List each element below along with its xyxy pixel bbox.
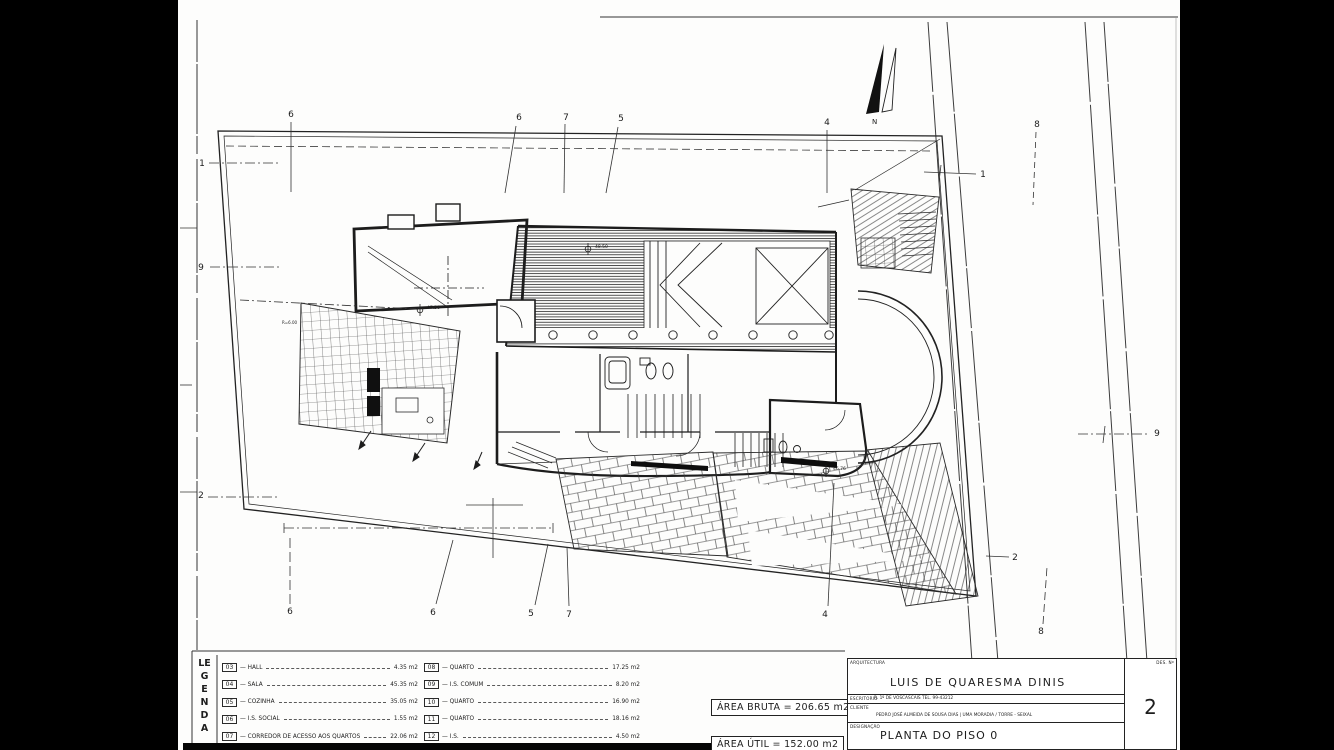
legend-leader (478, 701, 608, 703)
legend-column-right: 08 QUARTO 17.25 m2 09 I.S. COMUM 8.20 m2… (424, 661, 640, 743)
grid-marker-top-5: 4 (824, 118, 830, 128)
legend-code: 03 (222, 663, 237, 672)
legend-area: 45.35 m2 (390, 682, 418, 688)
partitions (497, 354, 770, 432)
grid-marker-top-6: 8 (1034, 120, 1040, 130)
legend-leader (487, 684, 611, 686)
legend-leader (463, 736, 612, 738)
legend-row: 07 CORREDOR DE ACESSO AOS QUARTOS 22.06 … (222, 730, 418, 743)
grid-marker-bottom-2: 6 (430, 608, 436, 618)
legend-code: 05 (222, 698, 237, 707)
legend-row: 06 I.S. SOCIAL 1.55 m2 (222, 713, 418, 726)
legend-row: 05 COZINHA 35.05 m2 (222, 696, 418, 709)
legend-leader (267, 684, 386, 686)
grid-marker-bottom-1: 6 (287, 607, 293, 617)
level-b: 48.50 (595, 244, 608, 250)
grid-marker-left-3: 2 (198, 491, 204, 501)
legend-row: 04 SALA 45.35 m2 (222, 678, 418, 691)
arquitectura-label: ARQUITECTURA (850, 660, 885, 665)
cliente-label: CLIENTE (850, 705, 869, 710)
floor-plan-drawing: N (0, 0, 1334, 750)
legend-label: QUARTO (442, 716, 474, 722)
legend-row: 08 QUARTO 17.25 m2 (424, 661, 640, 674)
legend-row: 10 QUARTO 16.90 m2 (424, 696, 640, 709)
roof-deck (506, 226, 836, 352)
grid-marker-top-2: 6 (516, 113, 522, 123)
legend-label: QUARTO (442, 665, 474, 671)
legend-label: HALL (240, 665, 262, 671)
architect-name: LUIS DE QUARESMA DINIS (890, 676, 1066, 689)
grid-marker-top-4: 5 (618, 114, 624, 124)
area-util-box: ÁREA ÚTIL = 152.00 m2 (711, 736, 844, 750)
legend-area: 22.06 m2 (390, 734, 418, 740)
legend-area: 8.20 m2 (616, 682, 640, 688)
legend-area: 4.50 m2 (616, 734, 640, 740)
legend-area: 1.55 m2 (394, 716, 418, 722)
legend-leader (266, 667, 389, 669)
legend-code: 10 (424, 698, 439, 707)
legend-row: 03 HALL 4.35 m2 (222, 661, 418, 674)
legend-code: 12 (424, 732, 439, 741)
legend-label: I.S. COMUM (442, 682, 483, 688)
legend-leader (478, 667, 608, 669)
level-c: 46.76 (833, 466, 846, 472)
legend-row: 09 I.S. COMUM 8.20 m2 (424, 678, 640, 691)
sheet-number-cell: DES. Nº 2 (1124, 659, 1176, 749)
legend-label: I.S. SOCIAL (240, 716, 280, 722)
kitchen-counter (367, 368, 380, 392)
legend-label: COZINHA (240, 699, 275, 705)
lower-terrace (497, 442, 978, 606)
legend-area: 18.16 m2 (612, 716, 640, 722)
legend-label: QUARTO (442, 699, 474, 705)
grid-marker-bottom-3: 5 (528, 609, 534, 619)
legend-row: 11 QUARTO 18.16 m2 (424, 713, 640, 726)
grid-marker-right-3: 2 (1012, 553, 1018, 563)
curved-wall (858, 291, 942, 463)
grid-marker-bottom-4: 7 (566, 610, 572, 620)
level-a: 47.56 (427, 305, 440, 311)
legend-area: 4.35 m2 (394, 665, 418, 671)
legend-area: 17.25 m2 (612, 665, 640, 671)
legend-label: I.S. (442, 734, 459, 740)
grid-marker-bottom-5: 4 (822, 610, 828, 620)
grid-marker-bottom-6: 8 (1038, 627, 1044, 637)
door-swings (588, 410, 845, 456)
des-no-label: DES. Nº (1156, 660, 1174, 665)
escritorio-info: R. 1º DE VOSCASCAIS TEL. 99-43212 (874, 696, 953, 701)
bathroom-fixtures (605, 357, 673, 389)
legend-code: 07 (222, 732, 237, 741)
legend-area: 16.90 m2 (612, 699, 640, 705)
legend-leader (478, 718, 608, 720)
sheet-number: 2 (1125, 695, 1176, 719)
scanned-floor-plan-page: N (0, 0, 1334, 750)
title-block: ARQUITECTURA LUIS DE QUARESMA DINIS ESCR… (847, 658, 1177, 750)
grid-marker-top-1: 6 (288, 110, 294, 120)
legend-code: 08 (424, 663, 439, 672)
grid-marker-left-1: 1 (199, 159, 205, 169)
grid-marker-left-2: 9 (198, 263, 204, 273)
legend-code: 11 (424, 715, 439, 724)
legend-column-left: 03 HALL 4.35 m2 04 SALA 45.35 m2 05 COZI… (222, 661, 418, 743)
roof-gable-panel (644, 241, 830, 329)
radius-note: R=6.00 (282, 320, 297, 325)
area-bruta-box: ÁREA BRUTA = 206.65 m2 (711, 699, 855, 716)
legend-leader (279, 701, 387, 703)
legend-label: SALA (240, 682, 263, 688)
legend-leader (284, 718, 390, 720)
legend-label: CORREDOR DE ACESSO AOS QUARTOS (240, 734, 360, 740)
cliente-info: PEDRO JOSÉ ALMEIDA DE SOUSA DIAS | UMA M… (876, 713, 1032, 718)
grid-marker-right-1: 1 (980, 170, 986, 180)
legend-code: 06 (222, 715, 237, 724)
legend-row: 12 I.S. 4.50 m2 (424, 730, 640, 743)
legend-leader (364, 736, 386, 738)
drawing-title: PLANTA DO PISO 0 (880, 729, 998, 742)
grid-marker-top-3: 7 (563, 113, 569, 123)
designacao-label: DESIGNAÇÃO (850, 724, 880, 729)
legend-code: 09 (424, 680, 439, 689)
north-label: N (872, 118, 877, 126)
grid-marker-right-2: 9 (1154, 429, 1160, 439)
legend-code: 04 (222, 680, 237, 689)
legend-title: LEGENDA (198, 657, 211, 735)
north-arrow-icon: N (866, 44, 896, 126)
legend-area: 35.05 m2 (390, 699, 418, 705)
title-block-main: ARQUITECTURA LUIS DE QUARESMA DINIS ESCR… (848, 659, 1125, 749)
left-courtyard (299, 303, 460, 443)
